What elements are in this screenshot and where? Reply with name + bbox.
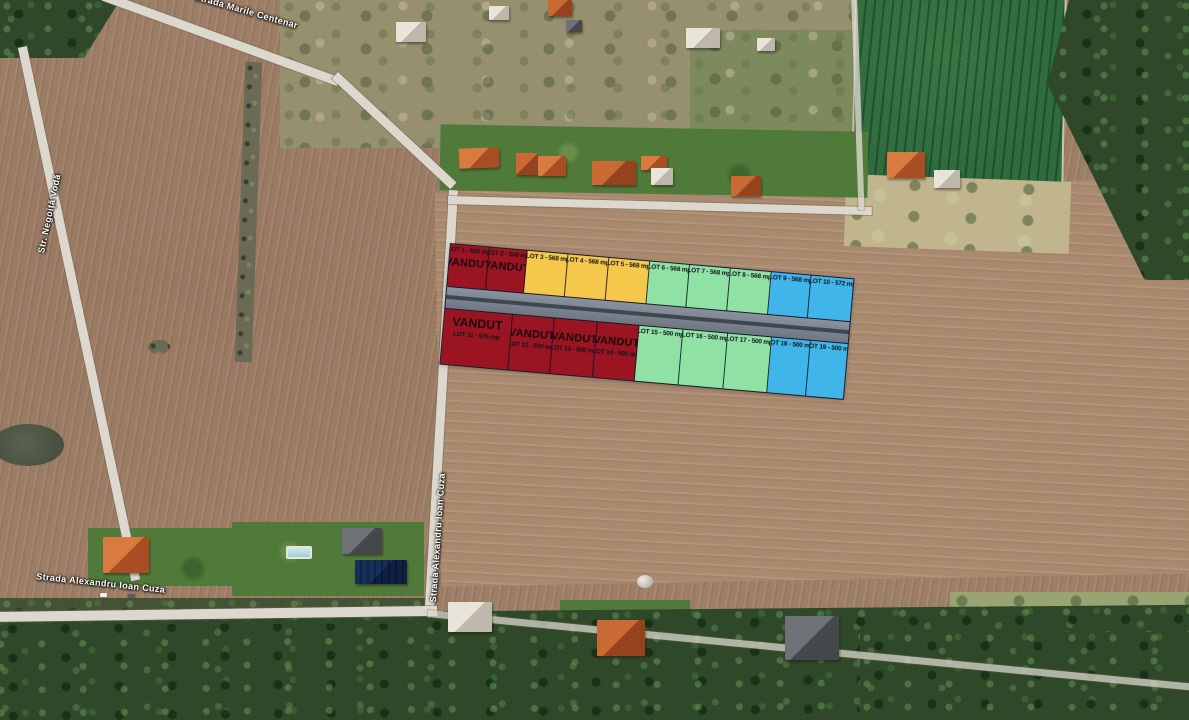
lot-9[interactable]: LOT 9 - 568 mp xyxy=(768,272,812,317)
lot-label: LOT 8 - 568 mp xyxy=(728,271,771,281)
lot-label: LOT 19 - 500 mp xyxy=(806,343,848,354)
lot-label: LOT 4 - 568 mp xyxy=(566,256,609,266)
lot-sold-text: VANDUT xyxy=(551,330,598,346)
house xyxy=(516,153,538,175)
house xyxy=(651,168,673,185)
lot-10[interactable]: LOT 10 - 572 mp xyxy=(808,276,853,321)
house xyxy=(103,537,149,573)
house xyxy=(538,156,566,176)
house-solar-panels xyxy=(355,560,407,584)
water-tank-dome xyxy=(637,575,653,588)
forest-bottomright xyxy=(860,632,1189,720)
lot-label: LOT 17 - 500 mp xyxy=(725,336,772,347)
lot-1[interactable]: LOT 1 - 500 mp VANDUT xyxy=(447,244,489,289)
lot-label: LOT 5 - 568 mp xyxy=(606,260,649,270)
car-dark xyxy=(128,594,135,598)
house xyxy=(489,6,509,20)
lot-label: LOT 16 - 500 mp xyxy=(681,332,728,343)
lot-3[interactable]: LOT 3 - 568 mp xyxy=(524,251,568,296)
house xyxy=(887,152,925,178)
lot-12[interactable]: LOT 12 - 500 mp VANDUT xyxy=(508,315,555,373)
lot-16[interactable]: LOT 16 - 500 mp xyxy=(679,330,728,389)
lot-label: LOT 12 - 500 mp xyxy=(508,341,555,352)
pool xyxy=(286,546,312,559)
lot-label: LOT 7 - 568 mp xyxy=(688,267,731,277)
house xyxy=(934,170,960,188)
lot-label: LOT 15 - 500 mp xyxy=(637,328,684,339)
lot-4[interactable]: LOT 4 - 568 mp xyxy=(565,254,609,299)
dark-spot xyxy=(148,340,170,354)
lot-8[interactable]: LOT 8 - 568 mp xyxy=(727,269,771,314)
lot-18[interactable]: LOT 18 - 500 mp xyxy=(767,337,810,395)
lot-sold-text: VANDUT xyxy=(486,259,528,275)
lot-label: LOT 18 - 500 mp xyxy=(767,339,810,350)
lot-label: LOT 6 - 568 mp xyxy=(647,264,690,274)
lot-label: LOT 9 - 568 mp xyxy=(769,274,812,284)
lot-17[interactable]: LOT 17 - 500 mp xyxy=(723,334,772,393)
car xyxy=(100,593,107,597)
lot-label: LOT 13 - 500 mp xyxy=(550,344,597,355)
lot-14[interactable]: LOT 14 - 500 mp VANDUT xyxy=(593,322,640,380)
house xyxy=(566,20,582,32)
house xyxy=(396,22,426,42)
lawn-bottomleft-2 xyxy=(232,522,424,596)
house xyxy=(686,28,720,48)
house xyxy=(448,602,492,632)
lot-label: LOT 3 - 568 mp xyxy=(525,253,568,263)
house xyxy=(459,147,500,168)
lot-label: LOT 2 - 500 mp xyxy=(486,249,528,259)
lot-11[interactable]: LOT 11 - 576 mp VANDUT xyxy=(440,309,513,370)
lot-sold-text: VANDUT xyxy=(452,315,503,333)
lot-sold-text: VANDUT xyxy=(447,256,489,272)
lot-label: LOT 11 - 576 mp xyxy=(453,331,500,341)
lot-label: LOT 10 - 572 mp xyxy=(808,278,853,289)
satellite-map-viewport[interactable]: Strada Marile Centenar Str. Negoiță Vodă… xyxy=(0,0,1189,720)
house xyxy=(592,161,636,185)
house xyxy=(731,176,761,196)
lot-6[interactable]: LOT 6 - 568 mp xyxy=(646,261,690,306)
house xyxy=(548,0,572,16)
lot-15[interactable]: LOT 15 - 500 mp xyxy=(635,326,684,385)
house xyxy=(597,620,645,656)
lot-19[interactable]: LOT 19 - 500 mp xyxy=(806,341,848,399)
lot-5[interactable]: LOT 5 - 568 mp xyxy=(605,258,649,303)
lot-13[interactable]: LOT 13 - 500 mp VANDUT xyxy=(550,318,597,376)
lot-label: LOT 14 - 500 mp xyxy=(593,348,640,359)
house xyxy=(342,528,382,554)
lot-sold-text: VANDUT xyxy=(593,334,640,350)
house xyxy=(757,38,775,51)
lot-sold-text: VANDUT xyxy=(508,327,555,343)
lot-label: LOT 1 - 500 mp xyxy=(447,246,489,256)
lot-2[interactable]: LOT 2 - 500 mp VANDUT xyxy=(486,247,528,292)
house xyxy=(785,616,839,660)
lot-7[interactable]: LOT 7 - 568 mp xyxy=(687,265,731,310)
garden-plot-topright xyxy=(851,0,1066,188)
